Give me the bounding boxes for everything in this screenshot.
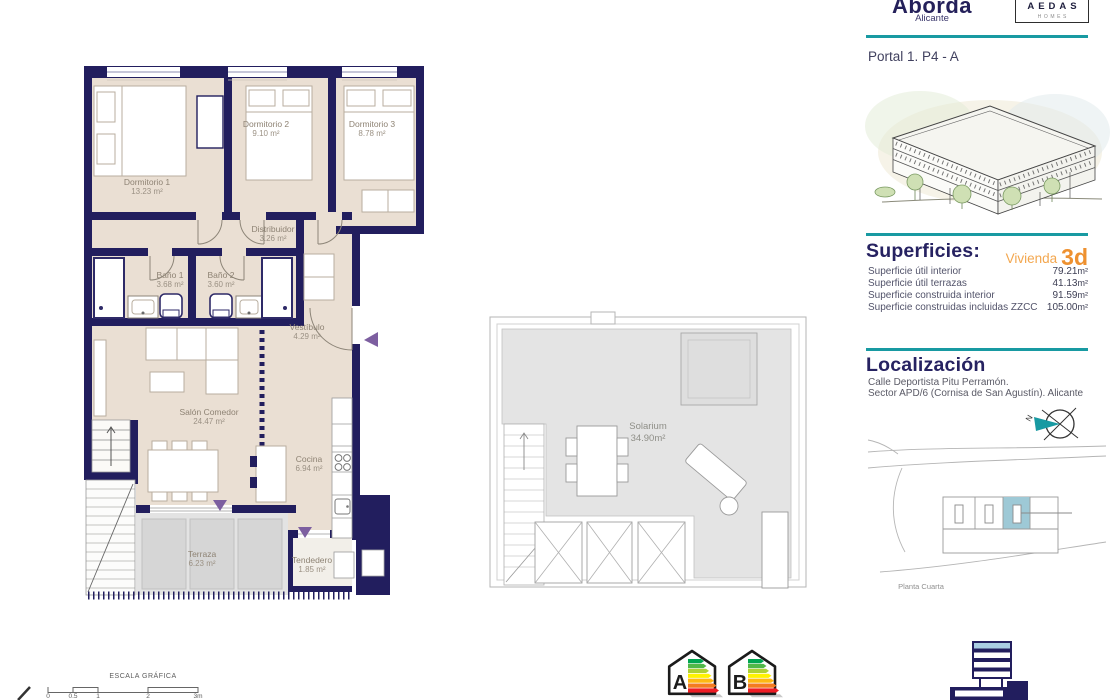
- divider-superficies: [866, 233, 1088, 236]
- scale-tick: 0.5: [68, 693, 77, 700]
- energy-rating-b-icon: B: [729, 651, 783, 697]
- room-label-dormitorio-2: Dormitorio 2 9.10 m²: [243, 119, 289, 138]
- divider-localizacion: [866, 348, 1088, 351]
- superficies-row: Superficie construida interior 91.59m²: [868, 290, 1088, 301]
- vivienda-label: Vivienda: [1006, 251, 1058, 266]
- building-sketch: [865, 91, 1110, 214]
- superficies-row: Superficie construidas incluidas ZZCC 10…: [868, 302, 1088, 313]
- room-label-cocina: Cocina 6.94 m²: [295, 454, 322, 473]
- superficies-row: Superficie útil terrazas 41.13m²: [868, 278, 1088, 289]
- logo-brand-sub: HOMES: [1016, 14, 1091, 20]
- room-label-vestibulo: Vestíbulo 4.29 m²: [290, 322, 325, 341]
- brochure-page: N A B: [0, 0, 1120, 700]
- building-section-diagram: [950, 642, 1028, 700]
- energy-rating-a-icon: A: [669, 651, 723, 697]
- solarium-plan: [490, 312, 806, 588]
- project-city: Alicante: [866, 13, 998, 24]
- room-label-solarium: Solarium 34.90m²: [629, 421, 667, 445]
- main-floorplan: [84, 66, 424, 596]
- plan-caption: Planta Cuarta: [898, 582, 944, 591]
- room-label-dormitorio-1: Dormitorio 1 13.23 m²: [124, 177, 170, 196]
- room-label-salon-comedor: Salón Comedor 24.47 m²: [179, 407, 238, 426]
- corner-mark: [18, 687, 30, 700]
- scale-tick: 1: [96, 693, 100, 700]
- energy-letter-b: B: [733, 672, 747, 694]
- room-label-dormitorio-3: Dormitorio 3 8.78 m²: [349, 119, 395, 138]
- room-label-bano-2: Baño 2 3.60 m²: [207, 270, 234, 289]
- room-label-terraza: Terraza 6.23 m²: [188, 549, 216, 568]
- unit-reference: Portal 1. P4 - A: [868, 49, 959, 64]
- room-label-bano-1: Baño 1 3.68 m²: [156, 270, 183, 289]
- scale-tick: 2: [146, 693, 150, 700]
- energy-letter-a: A: [673, 672, 687, 694]
- superficies-row: Superficie útil interior 79.21m²: [868, 266, 1088, 277]
- room-label-distribuidor: Distribuidor 3.26 m²: [252, 224, 295, 243]
- scale-tick: 0: [46, 693, 50, 700]
- address-line-1: Calle Deportista Pitu Perramón.: [868, 377, 1009, 388]
- site-map: [868, 440, 1106, 572]
- logo-brand-name: AEDAS: [1016, 2, 1092, 12]
- scale-bar-title: ESCALA GRÁFICA: [109, 673, 176, 680]
- room-label-tendedero: Tendedero 1.85 m²: [292, 555, 332, 574]
- compass-icon: N: [1024, 408, 1078, 440]
- aedas-homes-logo: AEDAS HOMES: [1015, 0, 1089, 23]
- stairs: [86, 420, 135, 595]
- compass-letter: N: [1024, 413, 1035, 423]
- address-line-2: Sector APD/6 (Cornisa de San Agustín). A…: [868, 388, 1083, 399]
- divider-top: [866, 35, 1088, 38]
- localizacion-title: Localización: [866, 354, 985, 377]
- scale-tick: 3m: [193, 693, 202, 700]
